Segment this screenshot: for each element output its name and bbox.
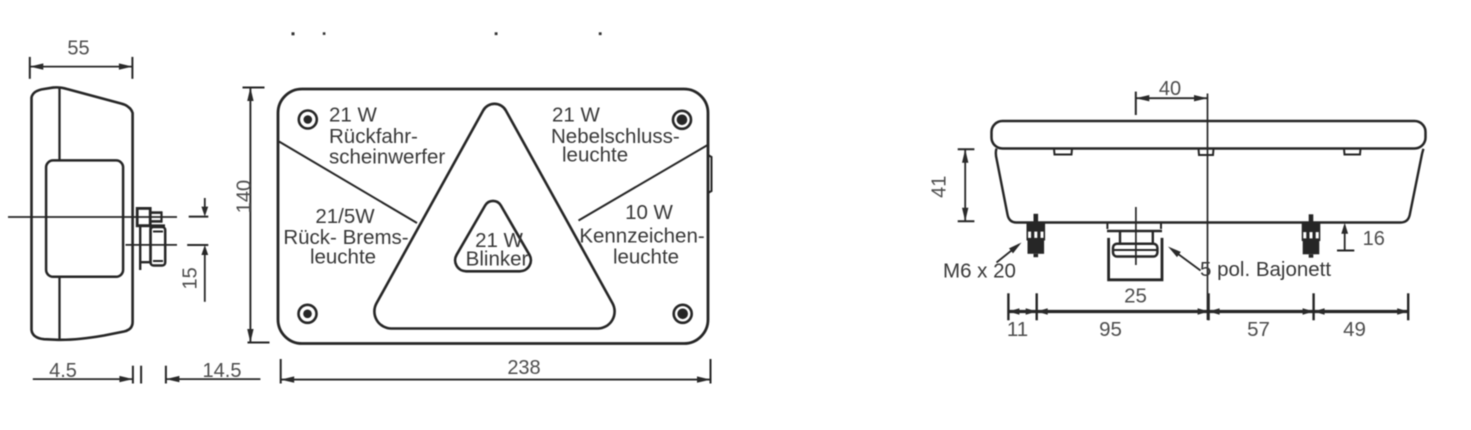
svg-text:41: 41: [929, 176, 951, 198]
svg-text:21/5W: 21/5W: [315, 205, 375, 228]
svg-text:57: 57: [1247, 318, 1270, 341]
svg-text:Blinker: Blinker: [466, 248, 529, 271]
svg-text:15: 15: [180, 267, 202, 289]
svg-text:11: 11: [1007, 318, 1028, 341]
svg-text:25: 25: [1124, 285, 1147, 308]
svg-text:Kennzeichen-: Kennzeichen-: [579, 225, 704, 248]
svg-text:leuchte: leuchte: [562, 144, 628, 167]
svg-text:14.5: 14.5: [203, 360, 242, 382]
svg-text:scheinwerfer: scheinwerfer: [329, 146, 445, 169]
svg-text:leuchte: leuchte: [613, 246, 679, 269]
svg-text:10 W: 10 W: [625, 201, 673, 224]
svg-text:40: 40: [1159, 78, 1181, 100]
svg-text:238: 238: [507, 357, 540, 379]
svg-text:16: 16: [1363, 228, 1385, 250]
svg-text:21 W: 21 W: [329, 104, 377, 127]
svg-text:95: 95: [1099, 318, 1122, 341]
svg-text:140: 140: [234, 180, 256, 213]
svg-text:M6 x 20: M6 x 20: [943, 260, 1016, 283]
svg-text:49: 49: [1343, 318, 1366, 341]
svg-text:4.5: 4.5: [49, 360, 77, 382]
svg-text:5 pol. Bajonett: 5 pol. Bajonett: [1200, 258, 1331, 281]
svg-text:leuchte: leuchte: [310, 246, 376, 269]
svg-text:21 W: 21 W: [552, 104, 600, 127]
svg-text:Rückfahr-: Rückfahr-: [329, 125, 418, 148]
svg-text:55: 55: [67, 38, 89, 60]
